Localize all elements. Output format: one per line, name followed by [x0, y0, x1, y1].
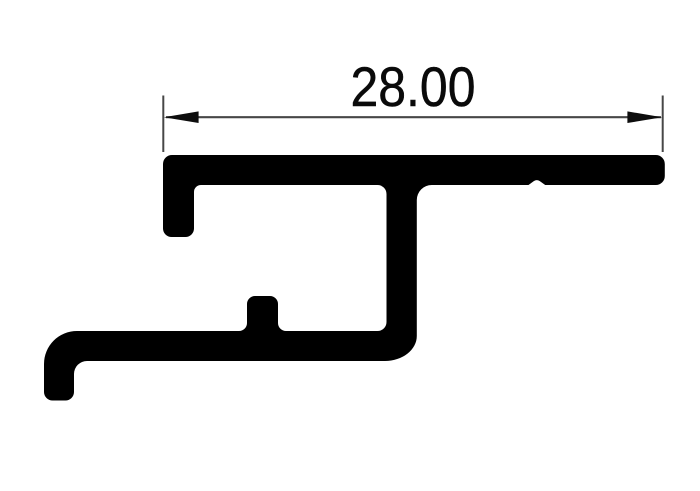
svg-text:28.00: 28.00 [351, 56, 476, 118]
